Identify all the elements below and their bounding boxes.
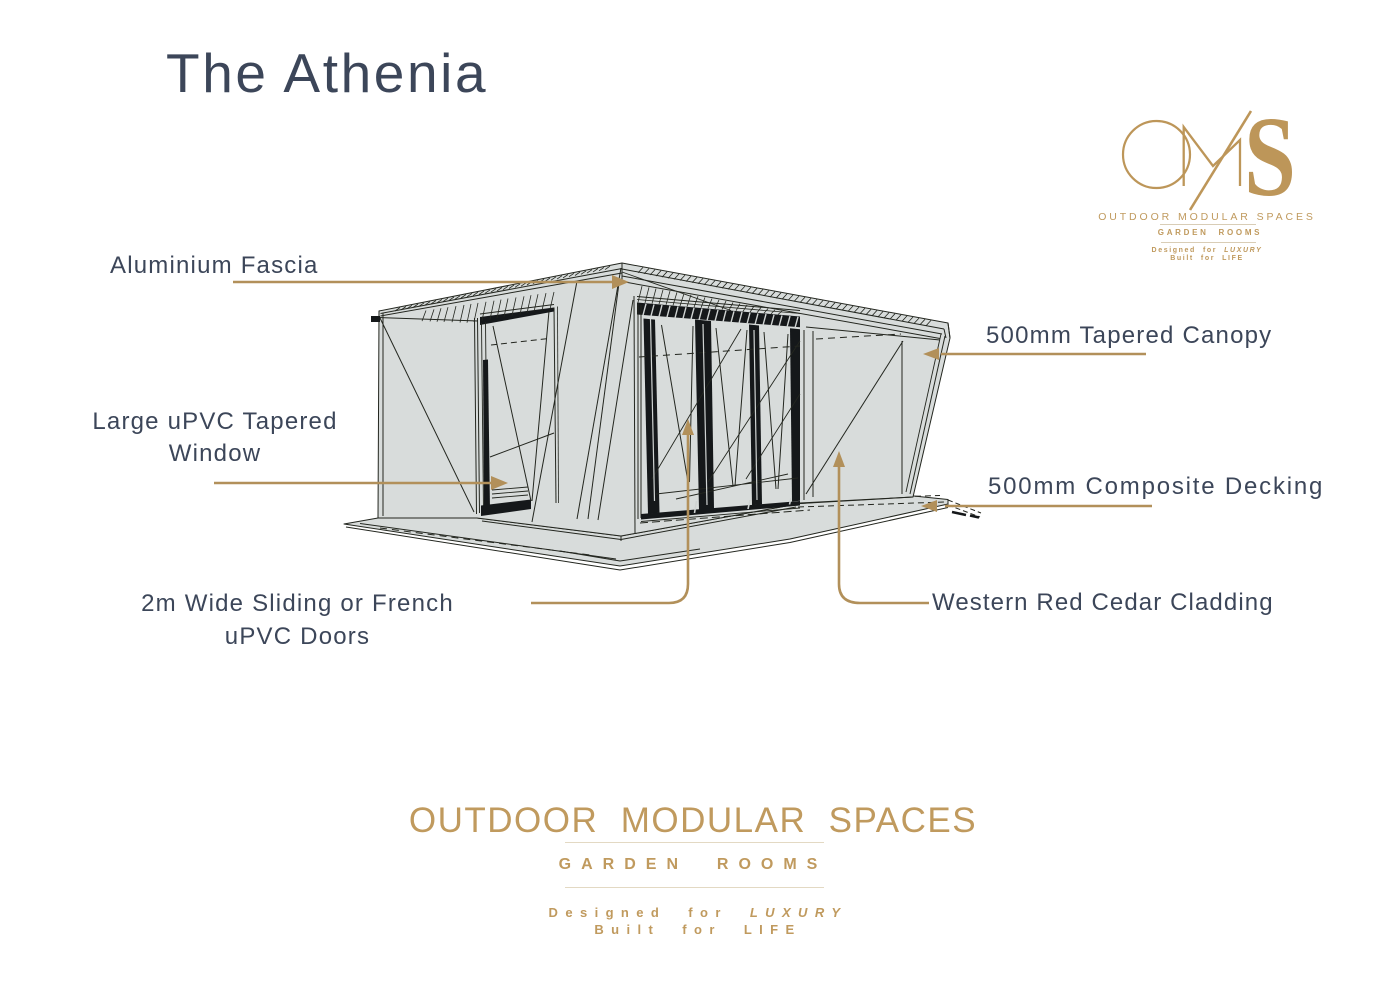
svg-text:S: S xyxy=(1244,93,1296,220)
